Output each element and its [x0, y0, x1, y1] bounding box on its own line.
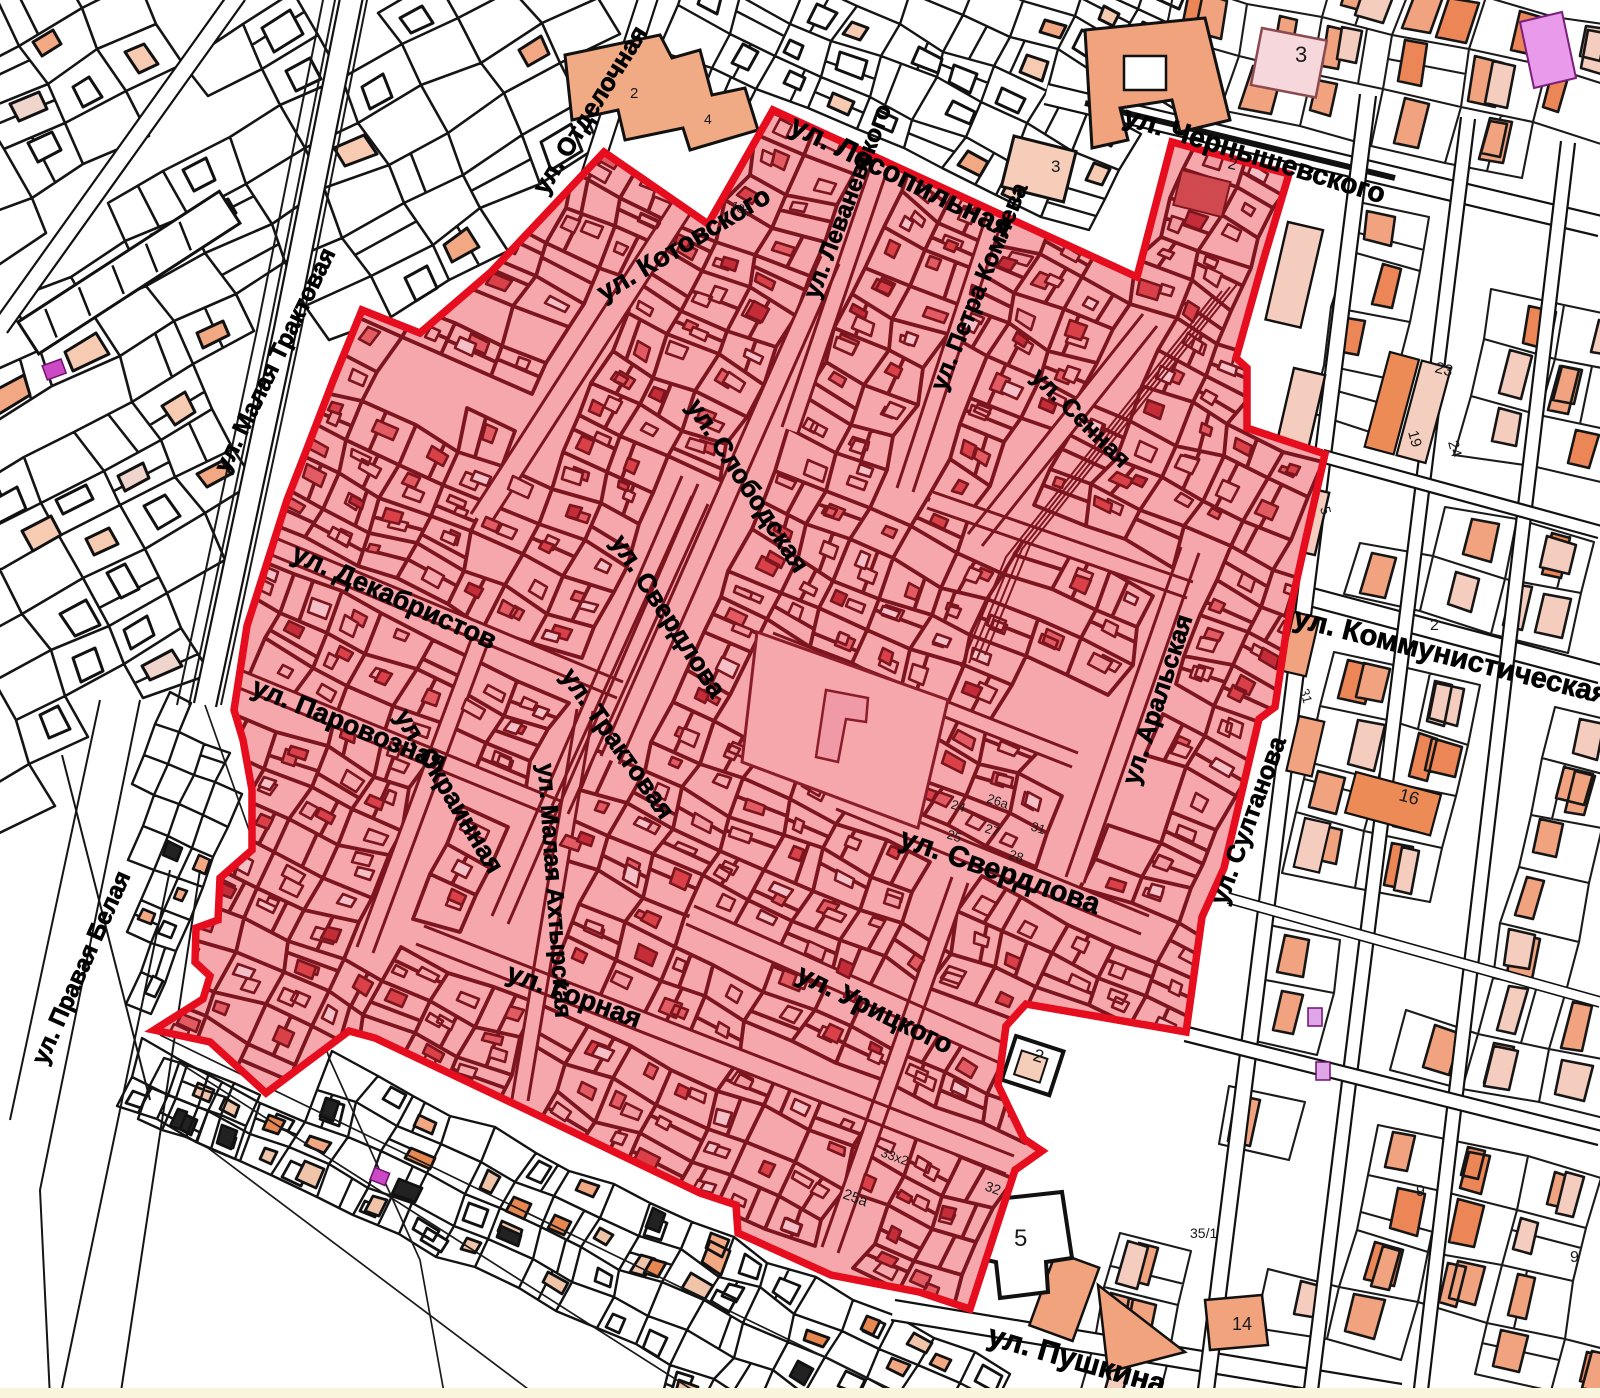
svg-text:4: 4	[704, 111, 712, 127]
svg-text:5: 5	[1014, 1225, 1027, 1252]
svg-text:9: 9	[1570, 1249, 1579, 1266]
svg-text:2: 2	[630, 85, 638, 102]
svg-text:14: 14	[1232, 1314, 1252, 1334]
svg-text:35/1: 35/1	[1190, 1225, 1217, 1241]
svg-text:3: 3	[1051, 157, 1060, 176]
svg-text:3: 3	[1295, 42, 1307, 67]
svg-text:2: 2	[1430, 617, 1439, 634]
svg-text:9: 9	[1416, 1183, 1425, 1200]
